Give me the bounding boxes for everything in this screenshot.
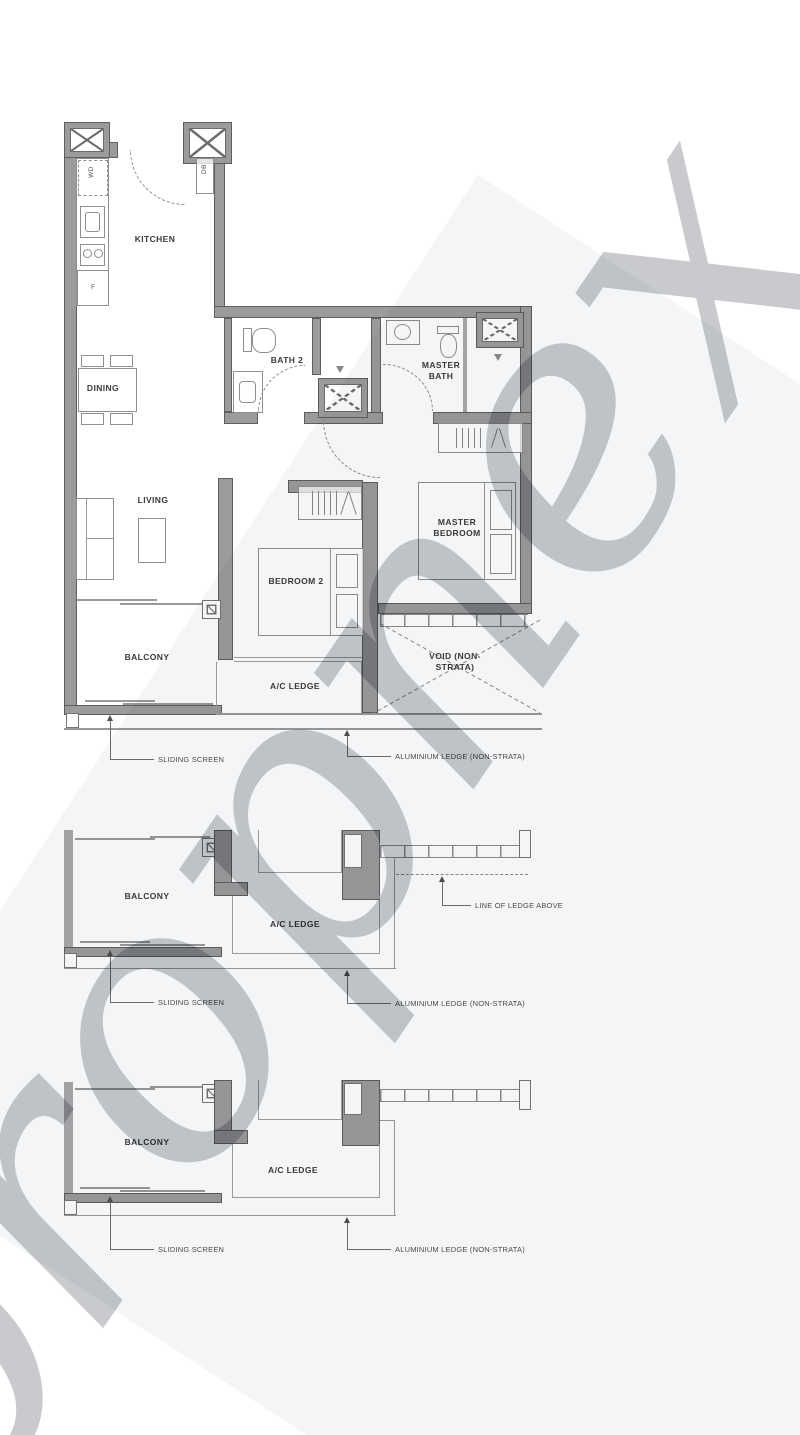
door-swing-arc [323,420,380,478]
shaft-x-icon [70,128,104,152]
shower-head-icon [494,354,502,361]
door-swing-arc [130,150,185,205]
shaft-x-icon [189,128,226,158]
toilet-bowl [440,334,457,358]
door-swing-arc [258,365,305,412]
wall-segment [64,705,222,715]
leader-line [110,721,111,759]
leader-line [110,956,111,1002]
wall-end-cap [66,713,79,728]
wall-end-cap [64,953,77,968]
room-label-void: VOID (NON-STRATA) [413,651,497,672]
sofa-line [86,499,87,579]
wardrobe-hatch-icon [456,428,486,448]
shower-head-icon [336,366,344,373]
room-label-ac-ledge: A/C LEDGE [263,919,327,930]
sliding-door-track [75,838,155,840]
sofa [76,498,114,580]
door-fitting-box [202,600,221,619]
ledge-railing [380,845,520,858]
sliding-door-track [120,603,204,605]
ledge-end-cap [519,1080,531,1110]
dining-chair [81,413,104,425]
leader-line [110,1202,111,1249]
sliding-door-track [75,1088,155,1090]
sliding-door-track [80,1187,150,1189]
wall-segment [378,603,532,614]
ac-unit-outline [258,1080,342,1120]
sliding-door-track [120,1190,205,1192]
boundary-line [394,1120,395,1215]
annotation-line-of-ledge: LINE OF LEDGE ABOVE [475,901,563,910]
pillow [490,534,512,574]
room-label-living: LIVING [128,495,178,506]
room-label-balcony: BALCONY [117,652,177,663]
leader-line [442,905,471,906]
sliding-door-track [123,703,213,705]
wall-notch [344,1083,362,1115]
aluminium-ledge-line [64,728,542,730]
ledge-railing [380,1089,520,1102]
pillow [336,554,358,588]
room-label-dining: DINING [78,383,128,394]
leader-line [110,1249,154,1250]
pillow [336,594,358,628]
room-label-ac-ledge: A/C LEDGE [261,1165,325,1176]
washer-dryer-label: WD [88,166,95,178]
toilet-bowl [252,328,276,353]
shaft-x-icon [482,318,518,342]
wall-segment [64,1193,222,1203]
watermark-text: propnex [0,58,800,1435]
toilet-tank [437,326,459,334]
wall-segment [520,306,532,614]
room-label-bedroom2: BEDROOM 2 [266,576,326,587]
wardrobe-hatch-icon [312,491,338,515]
leader-line [110,1002,154,1003]
sliding-door-track [80,941,150,943]
leader-line [380,857,395,858]
db-label: DB [201,164,208,174]
annotation-aluminium-ledge: ALUMINIUM LEDGE (NON-STRATA) [395,999,525,1008]
pillow [490,490,512,530]
leader-line [347,976,348,1003]
sliding-door-track [150,836,210,838]
annotation-sliding-screen: SLIDING SCREEN [158,998,224,1007]
annotation-sliding-screen: SLIDING SCREEN [158,755,224,764]
sofa-line [87,538,113,539]
leader-line [110,759,154,760]
ledge-end-cap [519,830,531,858]
sliding-door-track [150,1086,210,1088]
toilet-tank [243,328,252,352]
leader-line [347,1223,348,1249]
leader-line [380,1120,395,1121]
dining-chair [81,355,104,367]
annotation-aluminium-ledge: ALUMINIUM LEDGE (NON-STRATA) [395,752,525,761]
wall-segment [312,318,321,375]
wall-segment [218,478,233,660]
wall-segment [371,318,381,414]
room-label-master-bath: MASTER BATH [415,360,467,381]
boundary-line [394,858,395,968]
ac-unit-outline [258,830,342,873]
floor-plan-page: WD F DB [0,0,800,1435]
sliding-door-track [77,599,157,601]
ledge-above-dashed-line [396,874,528,875]
wall-segment [214,1130,248,1144]
sliding-door-track [120,944,205,946]
dining-chair [110,413,133,425]
coffee-table [138,518,166,563]
wall-segment [224,318,232,412]
dining-chair [110,355,133,367]
aluminium-ledge-line [64,968,396,969]
shaft-box [64,122,110,158]
basin [394,324,411,340]
wall-segment [214,153,225,310]
shaft-box [318,378,368,418]
boundary-line [216,713,542,715]
annotation-sliding-screen: SLIDING SCREEN [158,1245,224,1254]
leader-line [347,1249,391,1250]
wall-notch [344,834,362,868]
room-label-master-bedroom: MASTER BEDROOM [425,517,489,538]
leader-line [347,756,391,757]
sink-basin [85,212,100,232]
leader-line [347,1003,391,1004]
room-label-bath2: BATH 2 [264,355,310,366]
leader-line [347,736,348,756]
hob-burner-icon [83,249,92,258]
wall-segment [64,947,222,957]
aluminium-ledge-line [64,1215,396,1216]
room-label-ac-ledge: A/C LEDGE [263,681,327,692]
wall-segment [224,412,258,424]
wall-end-cap [64,1200,77,1215]
shaft-box [476,312,524,348]
shaft-x-icon [324,384,362,412]
fridge-label: F [77,284,109,291]
annotation-aluminium-ledge: ALUMINIUM LEDGE (NON-STRATA) [395,1245,525,1254]
bed-line [330,549,331,635]
sliding-door-track [85,700,155,702]
wall-segment [214,882,248,896]
room-label-balcony: BALCONY [117,1137,177,1148]
room-label-balcony: BALCONY [117,891,177,902]
hob-burner-icon [94,249,103,258]
basin [239,381,256,403]
room-label-kitchen: KITCHEN [125,234,185,245]
leader-line [442,882,443,905]
